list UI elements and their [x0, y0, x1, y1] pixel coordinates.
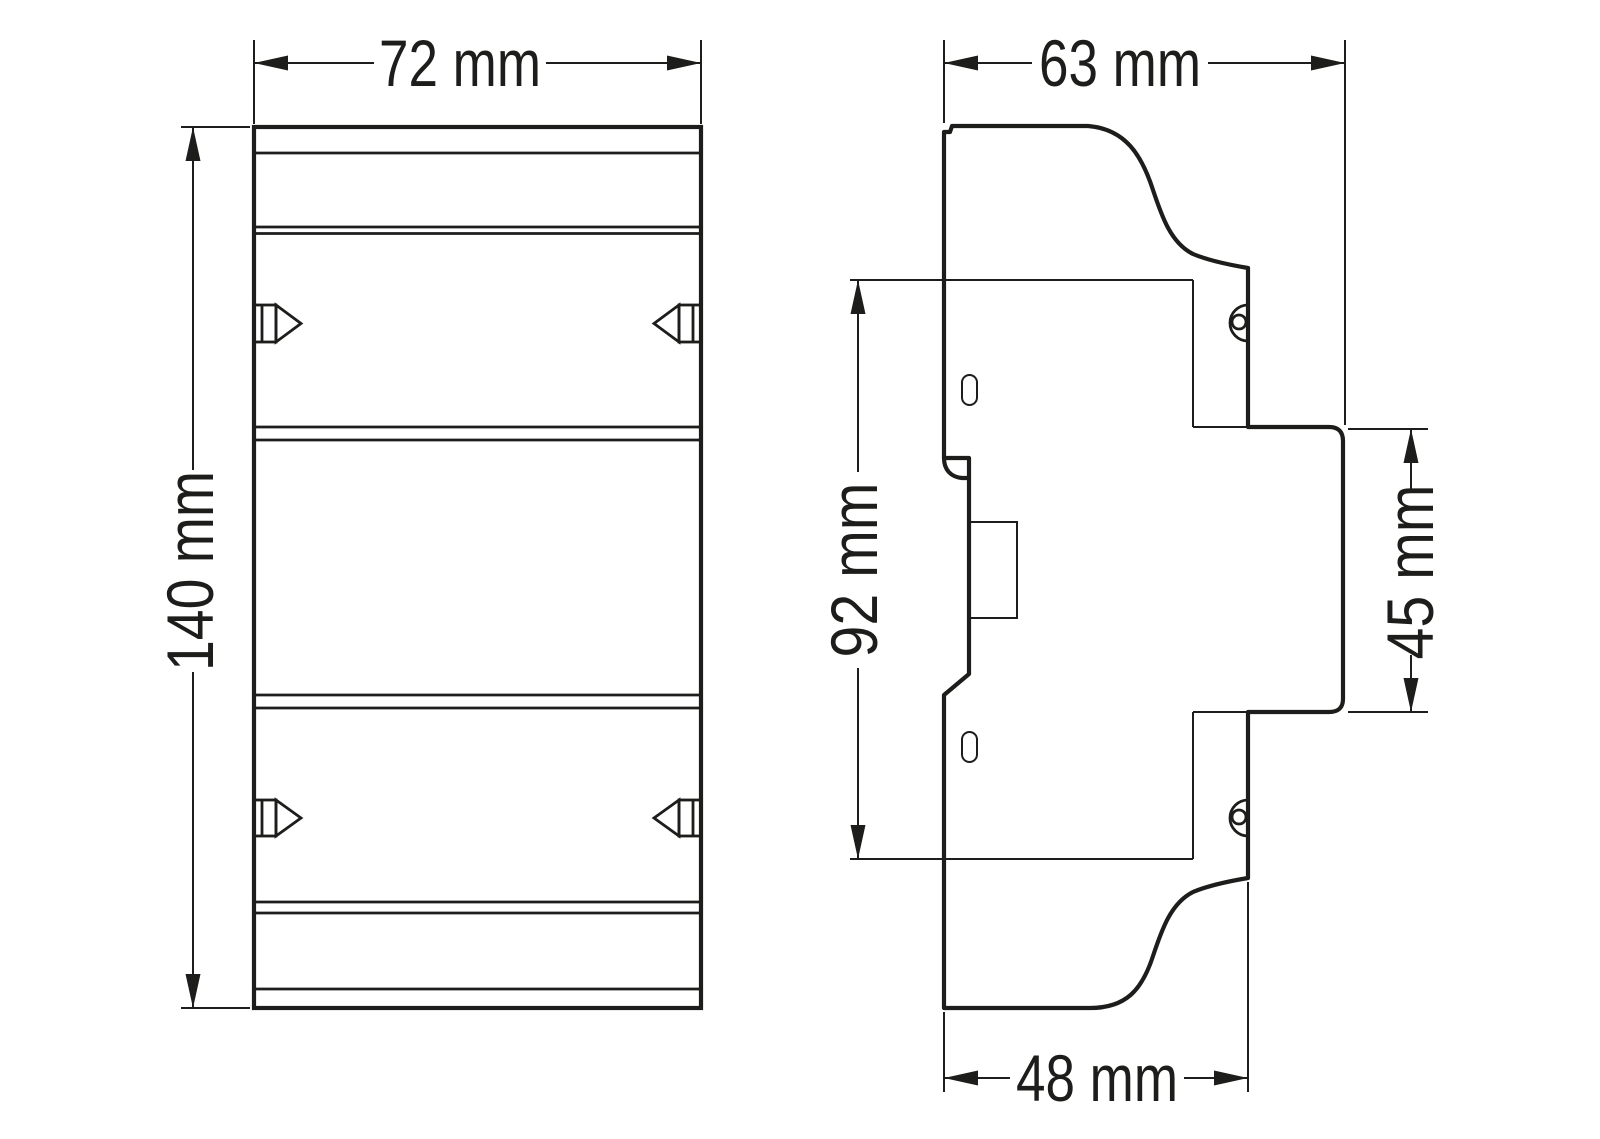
rail-claw-hook: [944, 458, 969, 478]
front-view: [254, 127, 701, 1008]
dimension-front-height: 140 mm: [153, 127, 250, 1008]
dimension-side-body-height: 92 mm: [817, 280, 891, 859]
technical-drawing-page: 72 mm 140 mm: [0, 0, 1600, 1139]
dimension-label-rail-depth: 48 mm: [1016, 1041, 1178, 1115]
rail-slider-tab: [969, 522, 1017, 618]
sealing-slot-bottom: [962, 732, 977, 762]
dimension-label-body-height: 92 mm: [817, 483, 891, 658]
arrowhead-left: [254, 56, 288, 71]
dimension-label-height: 140 mm: [153, 471, 227, 671]
pivot-detail-bottom: [1230, 800, 1248, 836]
arrowhead-up: [851, 280, 866, 314]
arrowhead-down: [186, 974, 201, 1008]
arrowhead-up: [1404, 429, 1419, 463]
arrowhead-left: [944, 1071, 978, 1086]
arrowhead-down: [1404, 678, 1419, 712]
front-view-body-outline: [254, 127, 701, 1008]
dimension-side-front-section: 45 mm: [1348, 429, 1447, 712]
arrowhead-up: [186, 127, 201, 161]
sealing-clip-icon-bottom-left: [254, 800, 301, 836]
sealing-clip-icon-bottom-right: [654, 800, 701, 836]
din-device-dimensional-drawing: 72 mm 140 mm: [0, 0, 1600, 1139]
dimension-label-width: 72 mm: [379, 26, 541, 100]
dimension-side-depth: 63 mm: [944, 26, 1345, 425]
dimension-front-width: 72 mm: [254, 26, 701, 124]
arrowhead-down: [851, 825, 866, 859]
side-view: [850, 126, 1343, 1008]
dimension-label-front-section: 45 mm: [1373, 485, 1447, 660]
sealing-clip-icon-top-left: [254, 305, 301, 342]
side-view-profile: [944, 126, 1343, 1008]
front-view-panel-lines: [254, 153, 701, 989]
dimension-label-depth: 63 mm: [1039, 26, 1201, 100]
dimension-side-rail-depth: 48 mm: [944, 882, 1248, 1115]
pivot-detail-top: [1230, 305, 1248, 341]
sealing-slot-top: [962, 375, 977, 405]
arrowhead-left: [944, 56, 978, 71]
sealing-clip-icon-top-right: [654, 305, 701, 342]
body-recess-lines: [850, 280, 1248, 859]
arrowhead-right: [667, 56, 701, 71]
arrowhead-right: [1214, 1071, 1248, 1086]
arrowhead-right: [1311, 56, 1345, 71]
